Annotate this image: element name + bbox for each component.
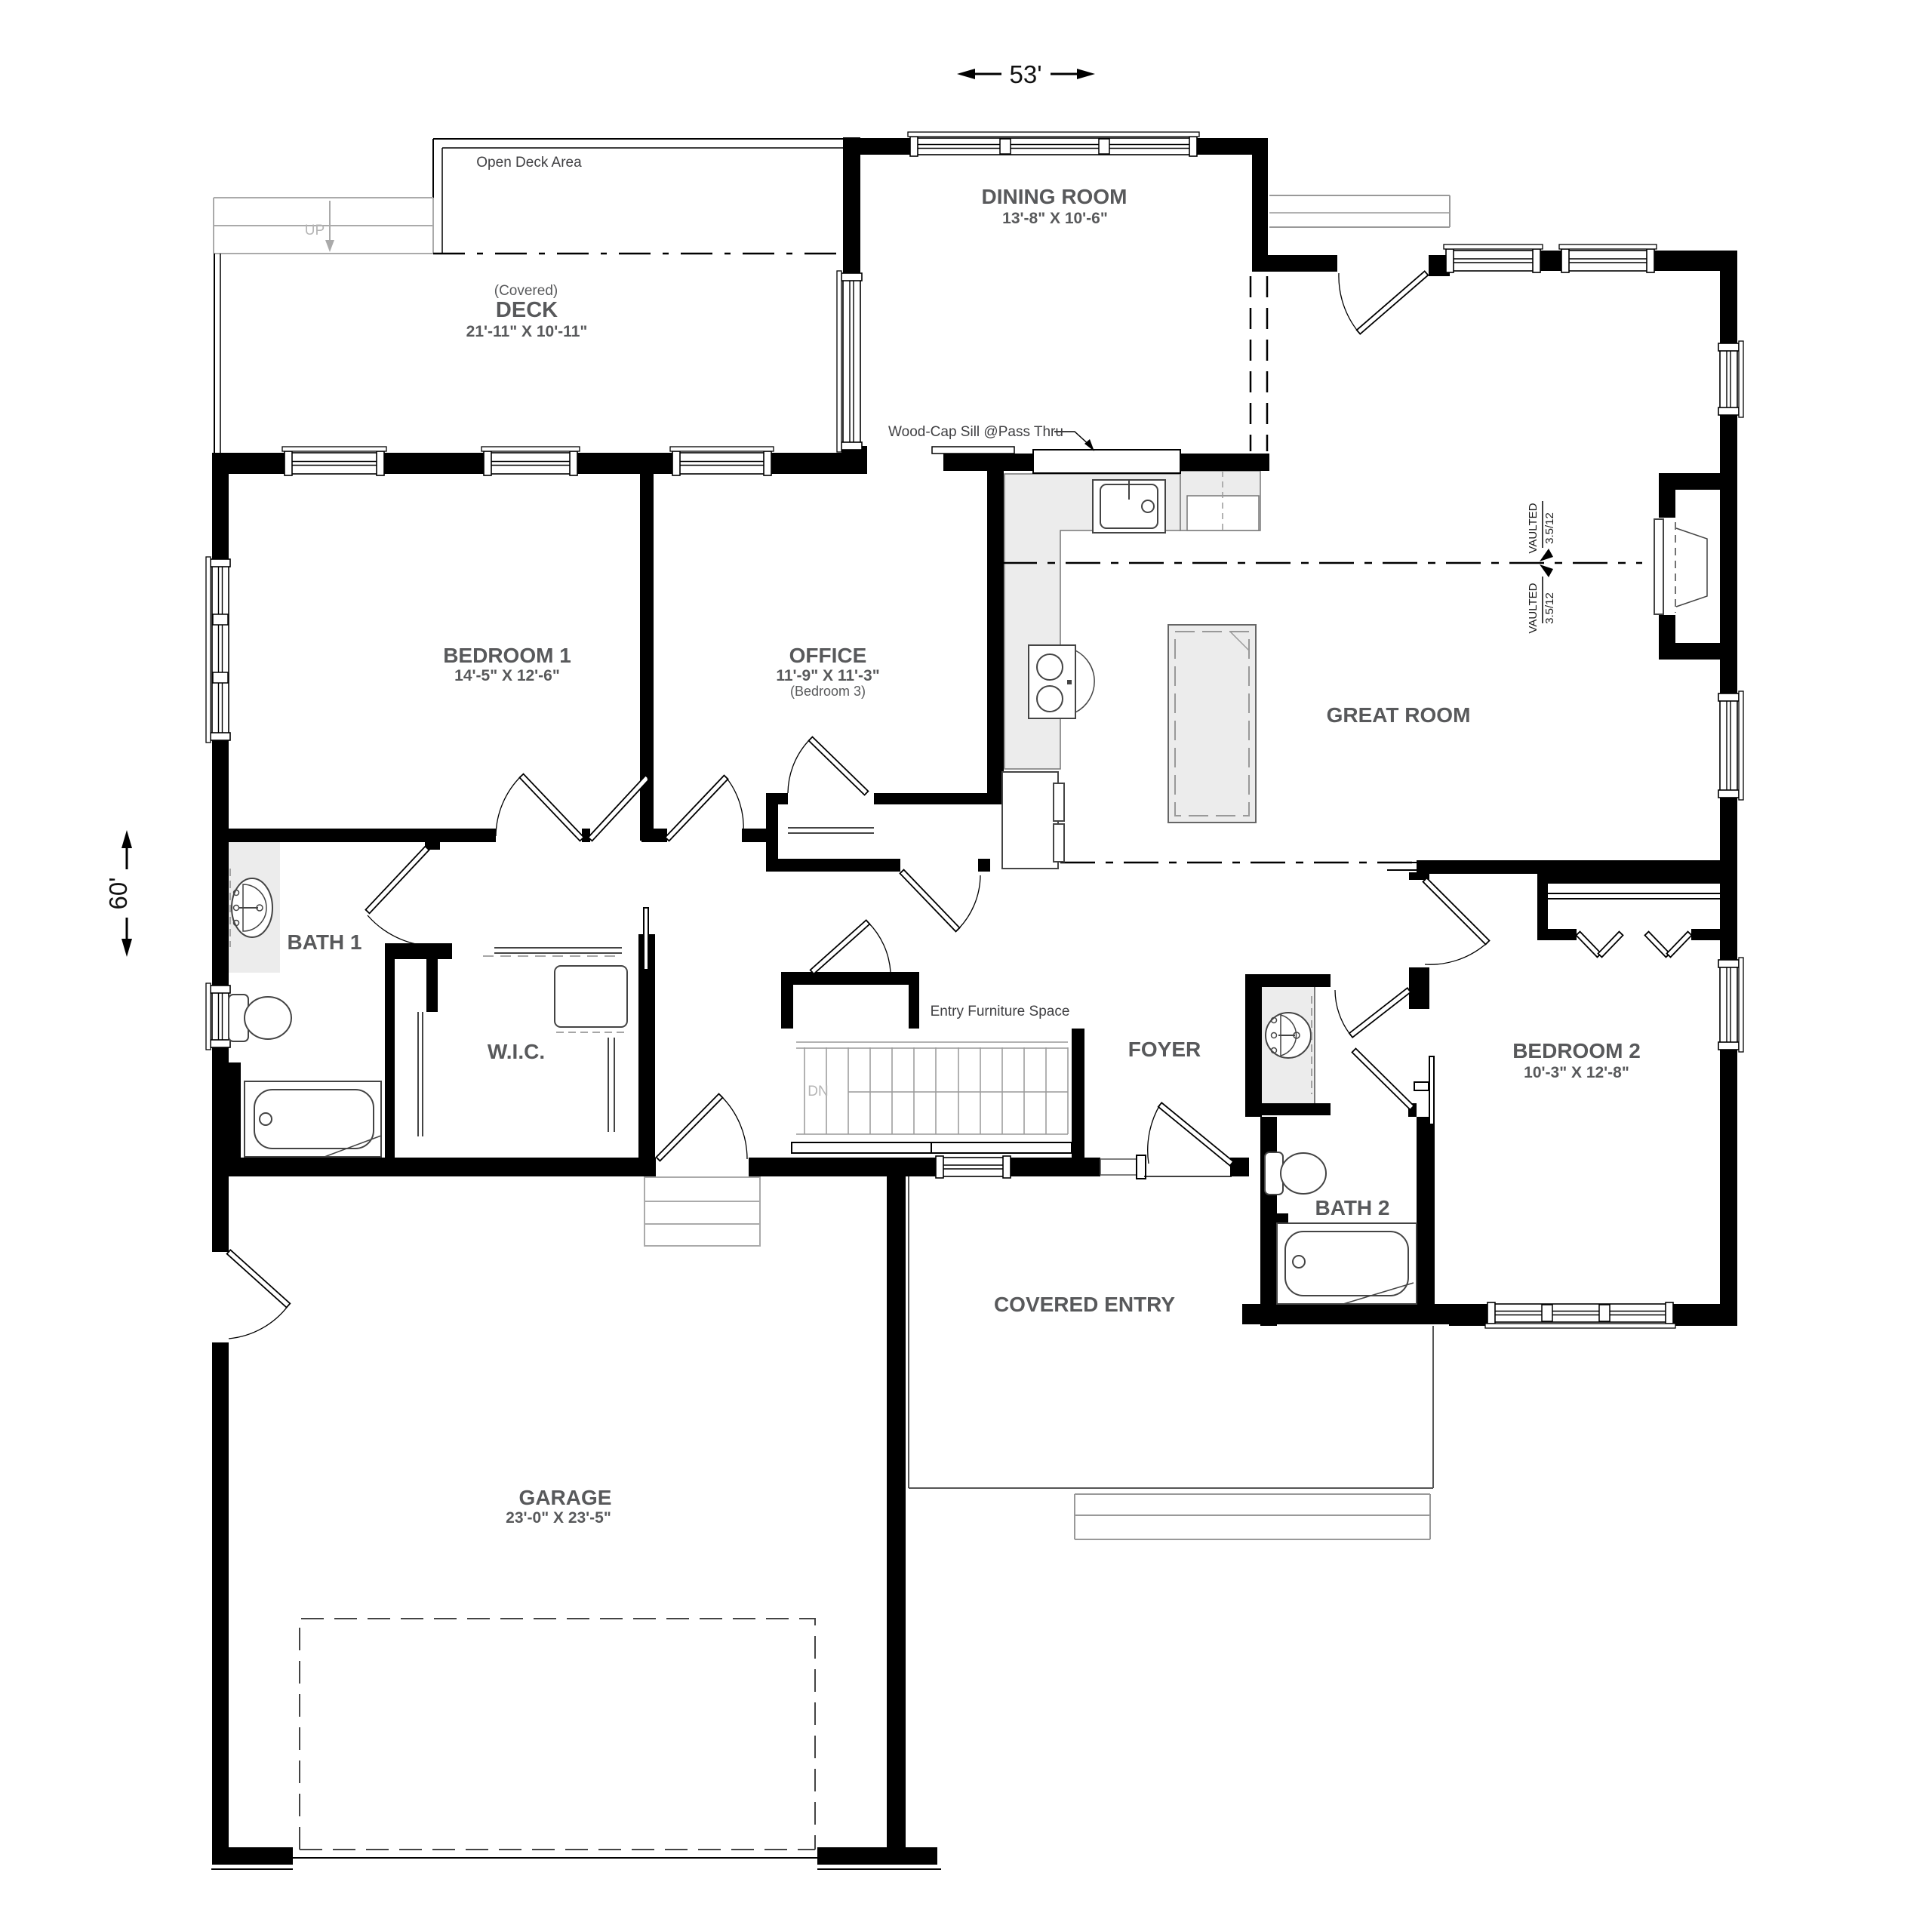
- svg-text:OFFICE: OFFICE: [789, 644, 867, 667]
- svg-text:Entry Furniture Space: Entry Furniture Space: [931, 1004, 1070, 1019]
- svg-text:DINING ROOM: DINING ROOM: [982, 185, 1128, 208]
- svg-text:Wood-Cap Sill @Pass Thru: Wood-Cap Sill @Pass Thru: [888, 424, 1063, 440]
- svg-text:FOYER: FOYER: [1128, 1038, 1201, 1061]
- svg-text:DN: DN: [808, 1084, 828, 1099]
- svg-text:UP: UP: [305, 223, 325, 238]
- svg-text:BEDROOM 2: BEDROOM 2: [1512, 1039, 1641, 1062]
- svg-text:53': 53': [1009, 60, 1041, 88]
- svg-text:BATH 2: BATH 2: [1315, 1196, 1389, 1219]
- svg-text:(Covered): (Covered): [494, 283, 558, 299]
- svg-text:BATH 1: BATH 1: [287, 930, 361, 954]
- svg-text:W.I.C.: W.I.C.: [488, 1040, 545, 1063]
- svg-text:VAULTED: VAULTED: [1527, 583, 1540, 633]
- svg-text:21'-11" X 10'-11": 21'-11" X 10'-11": [466, 323, 588, 340]
- svg-text:23'-0" X 23'-5": 23'-0" X 23'-5": [506, 1509, 611, 1527]
- svg-text:11'-9" X 11'-3": 11'-9" X 11'-3": [776, 667, 879, 684]
- svg-text:DECK: DECK: [496, 298, 558, 322]
- svg-text:14'-5" X 12'-6": 14'-5" X 12'-6": [454, 667, 560, 684]
- svg-text:13'-8" X 10'-6": 13'-8" X 10'-6": [1002, 210, 1108, 227]
- svg-text:VAULTED: VAULTED: [1527, 503, 1540, 553]
- svg-text:10'-3" X 12'-8": 10'-3" X 12'-8": [1524, 1064, 1629, 1081]
- svg-text:BEDROOM 1: BEDROOM 1: [443, 644, 571, 667]
- svg-text:(Bedroom 3): (Bedroom 3): [790, 684, 866, 699]
- svg-text:GREAT ROOM: GREAT ROOM: [1327, 703, 1471, 727]
- svg-text:3.5/12: 3.5/12: [1543, 592, 1556, 624]
- svg-text:60': 60': [104, 877, 132, 909]
- svg-text:Open Deck Area: Open Deck Area: [476, 155, 582, 171]
- svg-text:COVERED ENTRY: COVERED ENTRY: [994, 1293, 1175, 1316]
- svg-text:GARAGE: GARAGE: [519, 1486, 612, 1509]
- svg-text:3.5/12: 3.5/12: [1543, 512, 1556, 544]
